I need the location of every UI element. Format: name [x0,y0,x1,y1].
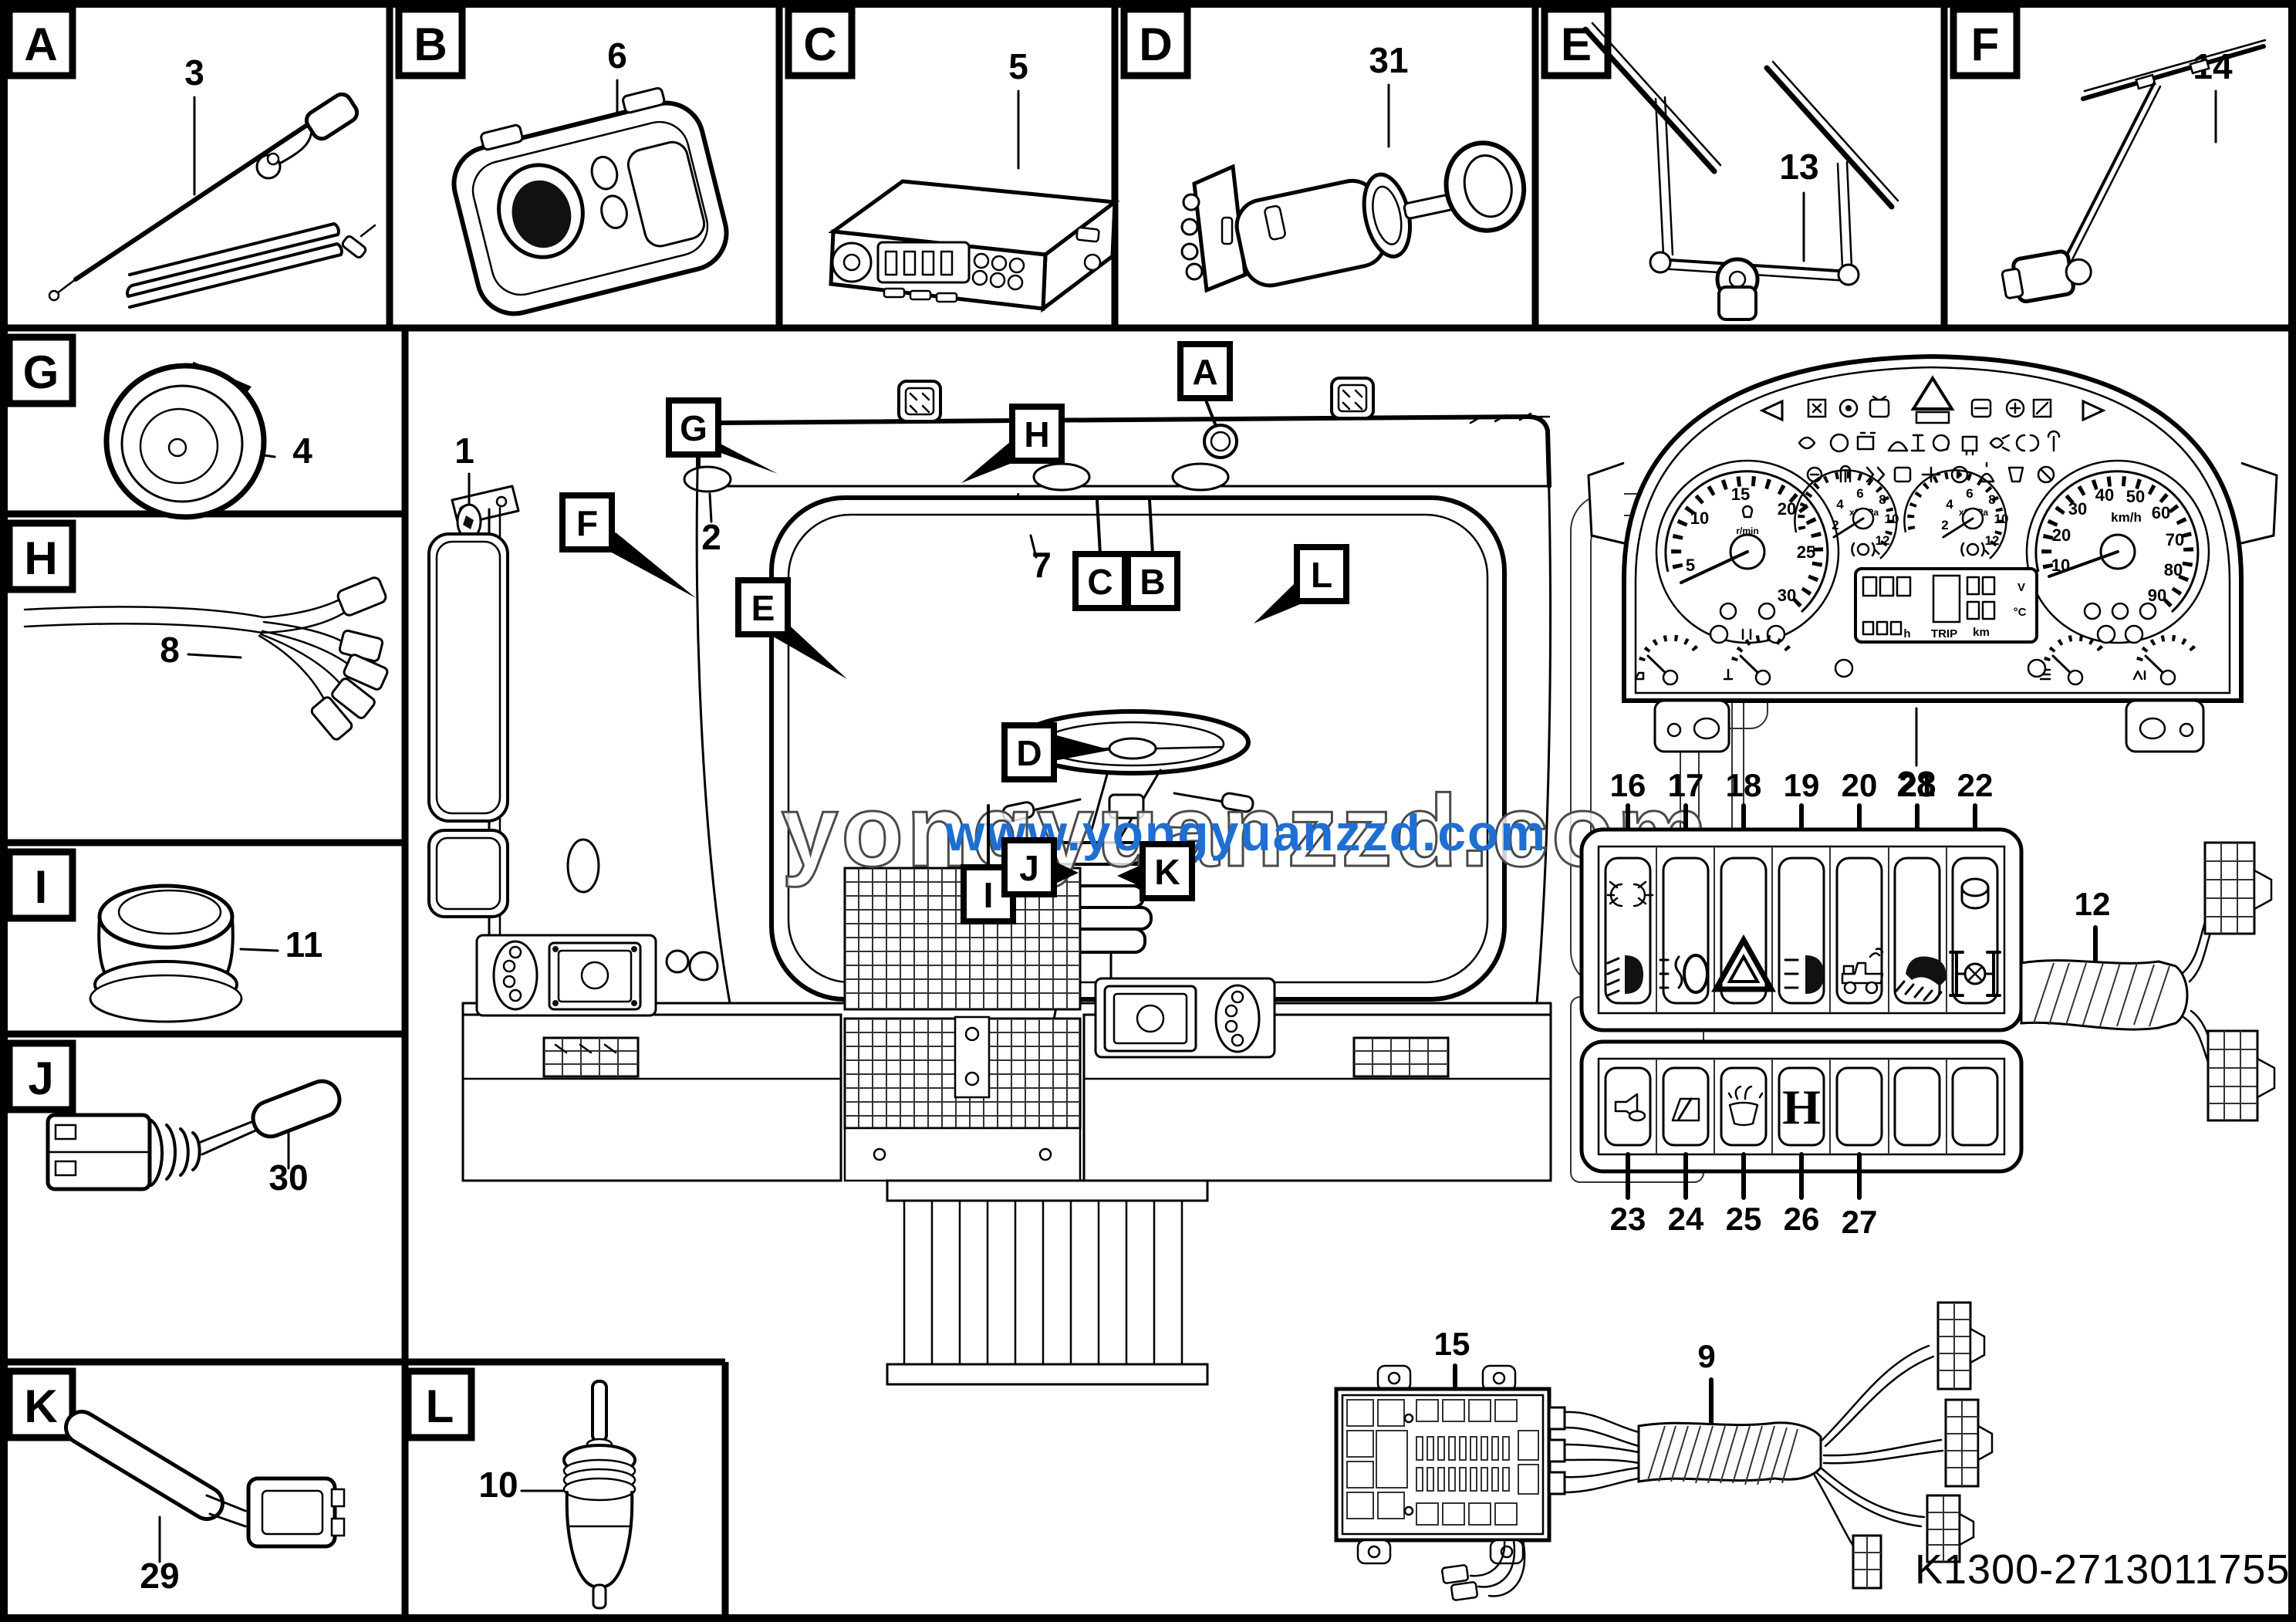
speed-unit: km/h [2111,510,2142,525]
part-6-label: 6 [607,35,627,76]
badge-a: A [9,9,73,76]
part-8-harness-drawing: 8 [25,576,389,741]
part-14-wiper-arm-drawing: 14 [2000,40,2265,305]
badge-f-letter: F [1971,19,2000,70]
callout-k: K [1143,844,1192,898]
badge-g-letter: G [23,346,59,398]
press-tick: 6 [1966,486,1973,501]
badge-d-letter: D [1139,19,1172,70]
callout-1-number: 1 [454,431,474,471]
badge-i: I [9,852,73,918]
part-3-label: 3 [184,52,204,93]
callout-b: B [1128,554,1177,608]
telltale-icon [1895,468,1910,482]
switch-22-number: 22 [1957,767,1994,803]
gauge-tachometer: 5 10 15 20 25 30 r/min [1656,461,1838,643]
switch-21-number: 21 [1899,767,1936,803]
badge-f: F [1953,9,2017,76]
speed-tick: 40 [2095,485,2114,505]
part-11-label: 11 [285,924,323,965]
callout-e-letter: E [751,588,775,628]
switch-25 [1721,1068,1766,1145]
speed-tick: 80 [2164,560,2183,580]
tach-tick: 5 [1686,556,1695,575]
front-ladder [887,1181,1207,1384]
parts-diagram-page: A B C D E F G H I J K L 3 6 [0,0,2296,1622]
callout-2-number: 2 [701,517,721,557]
callout-k-letter: K [1154,852,1180,892]
tach-tick: 25 [1797,542,1815,562]
badge-k-letter: K [24,1380,57,1432]
switch-20-number: 20 [1842,767,1878,803]
callout-h-letter: H [1024,414,1049,454]
harness-9-connector-strips [1853,1303,1992,1588]
tach-tick: 20 [1778,499,1796,519]
part-4-horn-drawing: 4 [106,364,312,517]
callout-b-letter: B [1140,562,1165,602]
badge-d: D [1124,9,1187,76]
press-tick: 2 [1832,518,1838,532]
badge-g: G [9,337,73,404]
callout-a-letter: A [1192,352,1217,392]
diagram-canvas: A B C D E F G H I J K L 3 6 [0,0,2296,1622]
tach-tick: 10 [1690,509,1709,528]
callout-l: L [1297,547,1346,601]
callout-j-letter: J [1019,848,1039,888]
bumper-step-grille-right [1354,1038,1448,1076]
press-tick: 2 [1941,518,1948,532]
callout-a: A [1180,344,1230,398]
callout-d: D [1004,725,1054,779]
badge-l: L [408,1371,471,1438]
callout-c-letter: C [1087,562,1113,602]
speed-tick: 90 [2148,586,2166,605]
switch-18-number: 18 [1726,767,1762,803]
part-8-label: 8 [160,630,180,670]
switch-17-number: 17 [1668,767,1704,803]
cluster-mount-tabs [1655,701,2203,752]
telltale-icon [1870,400,1889,417]
badge-b: B [399,9,462,76]
part-11-cap-drawing: 11 [90,886,322,1022]
callout-i-letter: I [984,875,994,915]
badge-i-letter: I [35,861,48,913]
callout-f: F [562,495,612,549]
badge-h: H [9,523,73,590]
telltale-icon [1916,412,1949,423]
callout-e: E [738,580,788,634]
badge-a-letter: A [24,19,57,70]
lcd-temp-label: °C [2014,606,2027,619]
part-10-washer-pump-drawing: 10 [478,1381,635,1608]
callout-c: C [1075,554,1125,608]
speed-tick: 70 [2166,530,2184,549]
lcd-trip-label: TRIP [1931,627,1957,640]
press-tick: 12 [1985,533,2000,548]
switch-21 [1895,858,1940,1003]
part-30-combo-switch-drawing: 30 [48,1076,344,1198]
switch-24-number: 24 [1668,1201,1704,1237]
switch-16-number: 16 [1610,767,1646,803]
callout-g-letter: G [680,408,707,448]
fuse-box-15-label: 15 [1434,1326,1470,1362]
headlamp-cluster-left [477,935,656,1015]
badge-e-letter: E [1561,19,1592,70]
badge-c-letter: C [803,19,836,70]
callout-l-letter: L [1311,555,1332,595]
press-tick: 4 [1946,497,1953,512]
switch-blank-1 [1895,1068,1940,1145]
tach-tick: 30 [1778,586,1796,605]
headlamp-cluster-right [1096,978,1275,1057]
speed-tick: 50 [2126,487,2145,506]
part-13-wiper-assembly-drawing: 13 [1585,23,1898,319]
press-tick: 10 [1885,512,1899,526]
lcd-hours-label: h [1903,627,1910,640]
switch-23 [1606,1068,1650,1145]
badge-l-letter: L [426,1380,454,1432]
callout-d-letter: D [1016,733,1042,773]
part-31-label: 31 [1369,40,1408,80]
callout-h: H [1012,407,1062,461]
press-tick: 8 [1988,492,1995,507]
switch-27 [1837,1068,1882,1145]
press-tick: 10 [1994,512,2009,526]
badge-b-letter: B [414,19,447,70]
harness-12-label: 12 [2075,886,2111,922]
switch-26-number: 26 [1784,1201,1820,1237]
press-tick: 8 [1879,492,1886,507]
lcd-volt-label: V [2017,581,2025,594]
part-3-antenna-drawing: 3 [49,52,375,307]
lcd-km-label: km [1973,626,1990,639]
part-13-label: 13 [1779,147,1818,187]
speed-tick: 20 [2052,525,2071,545]
switch-19-number: 19 [1784,767,1820,803]
press-tick: 12 [1876,533,1890,548]
instrument-cluster: 5 10 15 20 25 30 r/min 2 4 6 8 10 12 x1M… [1589,357,2277,804]
switch-25-number: 25 [1726,1201,1762,1237]
cluster-lcd: V °C km h TRIP [1855,569,2037,642]
part-5-radio-drawing: 5 [831,46,1115,309]
part-4-label: 4 [292,431,312,471]
switch-20 [1837,858,1882,1003]
badge-j: J [9,1043,73,1110]
speed-tick: 30 [2068,499,2087,519]
badge-k: K [9,1371,73,1438]
press-tick: 6 [1856,486,1863,501]
callout-j: J [1004,840,1054,894]
part-6-dome-lamp-drawing: 6 [442,35,734,322]
bumper-step-grille-left [544,1038,638,1076]
drawing-part-code: K1300-2713011755 [1915,1546,2290,1593]
gauge-speedometer: 10 20 30 40 50 60 70 80 90 km/h [2027,461,2209,643]
part-5-label: 5 [1008,46,1028,86]
switch-23-number: 23 [1610,1201,1646,1237]
part-29-lever-drawing: 29 [82,1428,344,1596]
press-tick: 4 [1836,497,1844,512]
speed-tick: 60 [2152,503,2170,522]
harness-9-label: 9 [1697,1338,1715,1374]
tach-tick: 15 [1731,485,1750,504]
fuse-box-15: 15 [1336,1326,1565,1563]
part-10-label: 10 [478,1465,518,1505]
switch-panels: 16 17 18 19 20 21 22 [1582,767,2021,1240]
callout-f-letter: F [576,503,598,543]
callout-g: G [669,400,718,454]
harness-12: 12 [2021,843,2274,1120]
badge-c: C [788,9,852,76]
switch-blank-2 [1953,1068,1997,1145]
badge-h-letter: H [24,532,57,584]
badge-j-letter: J [28,1053,53,1104]
telltale-icon [1831,434,1848,451]
switch-26-h-label: H [1782,1080,1821,1134]
switch-27-number: 27 [1842,1204,1878,1240]
part-31-ignition-switch-drawing: 31 [1182,40,1534,290]
